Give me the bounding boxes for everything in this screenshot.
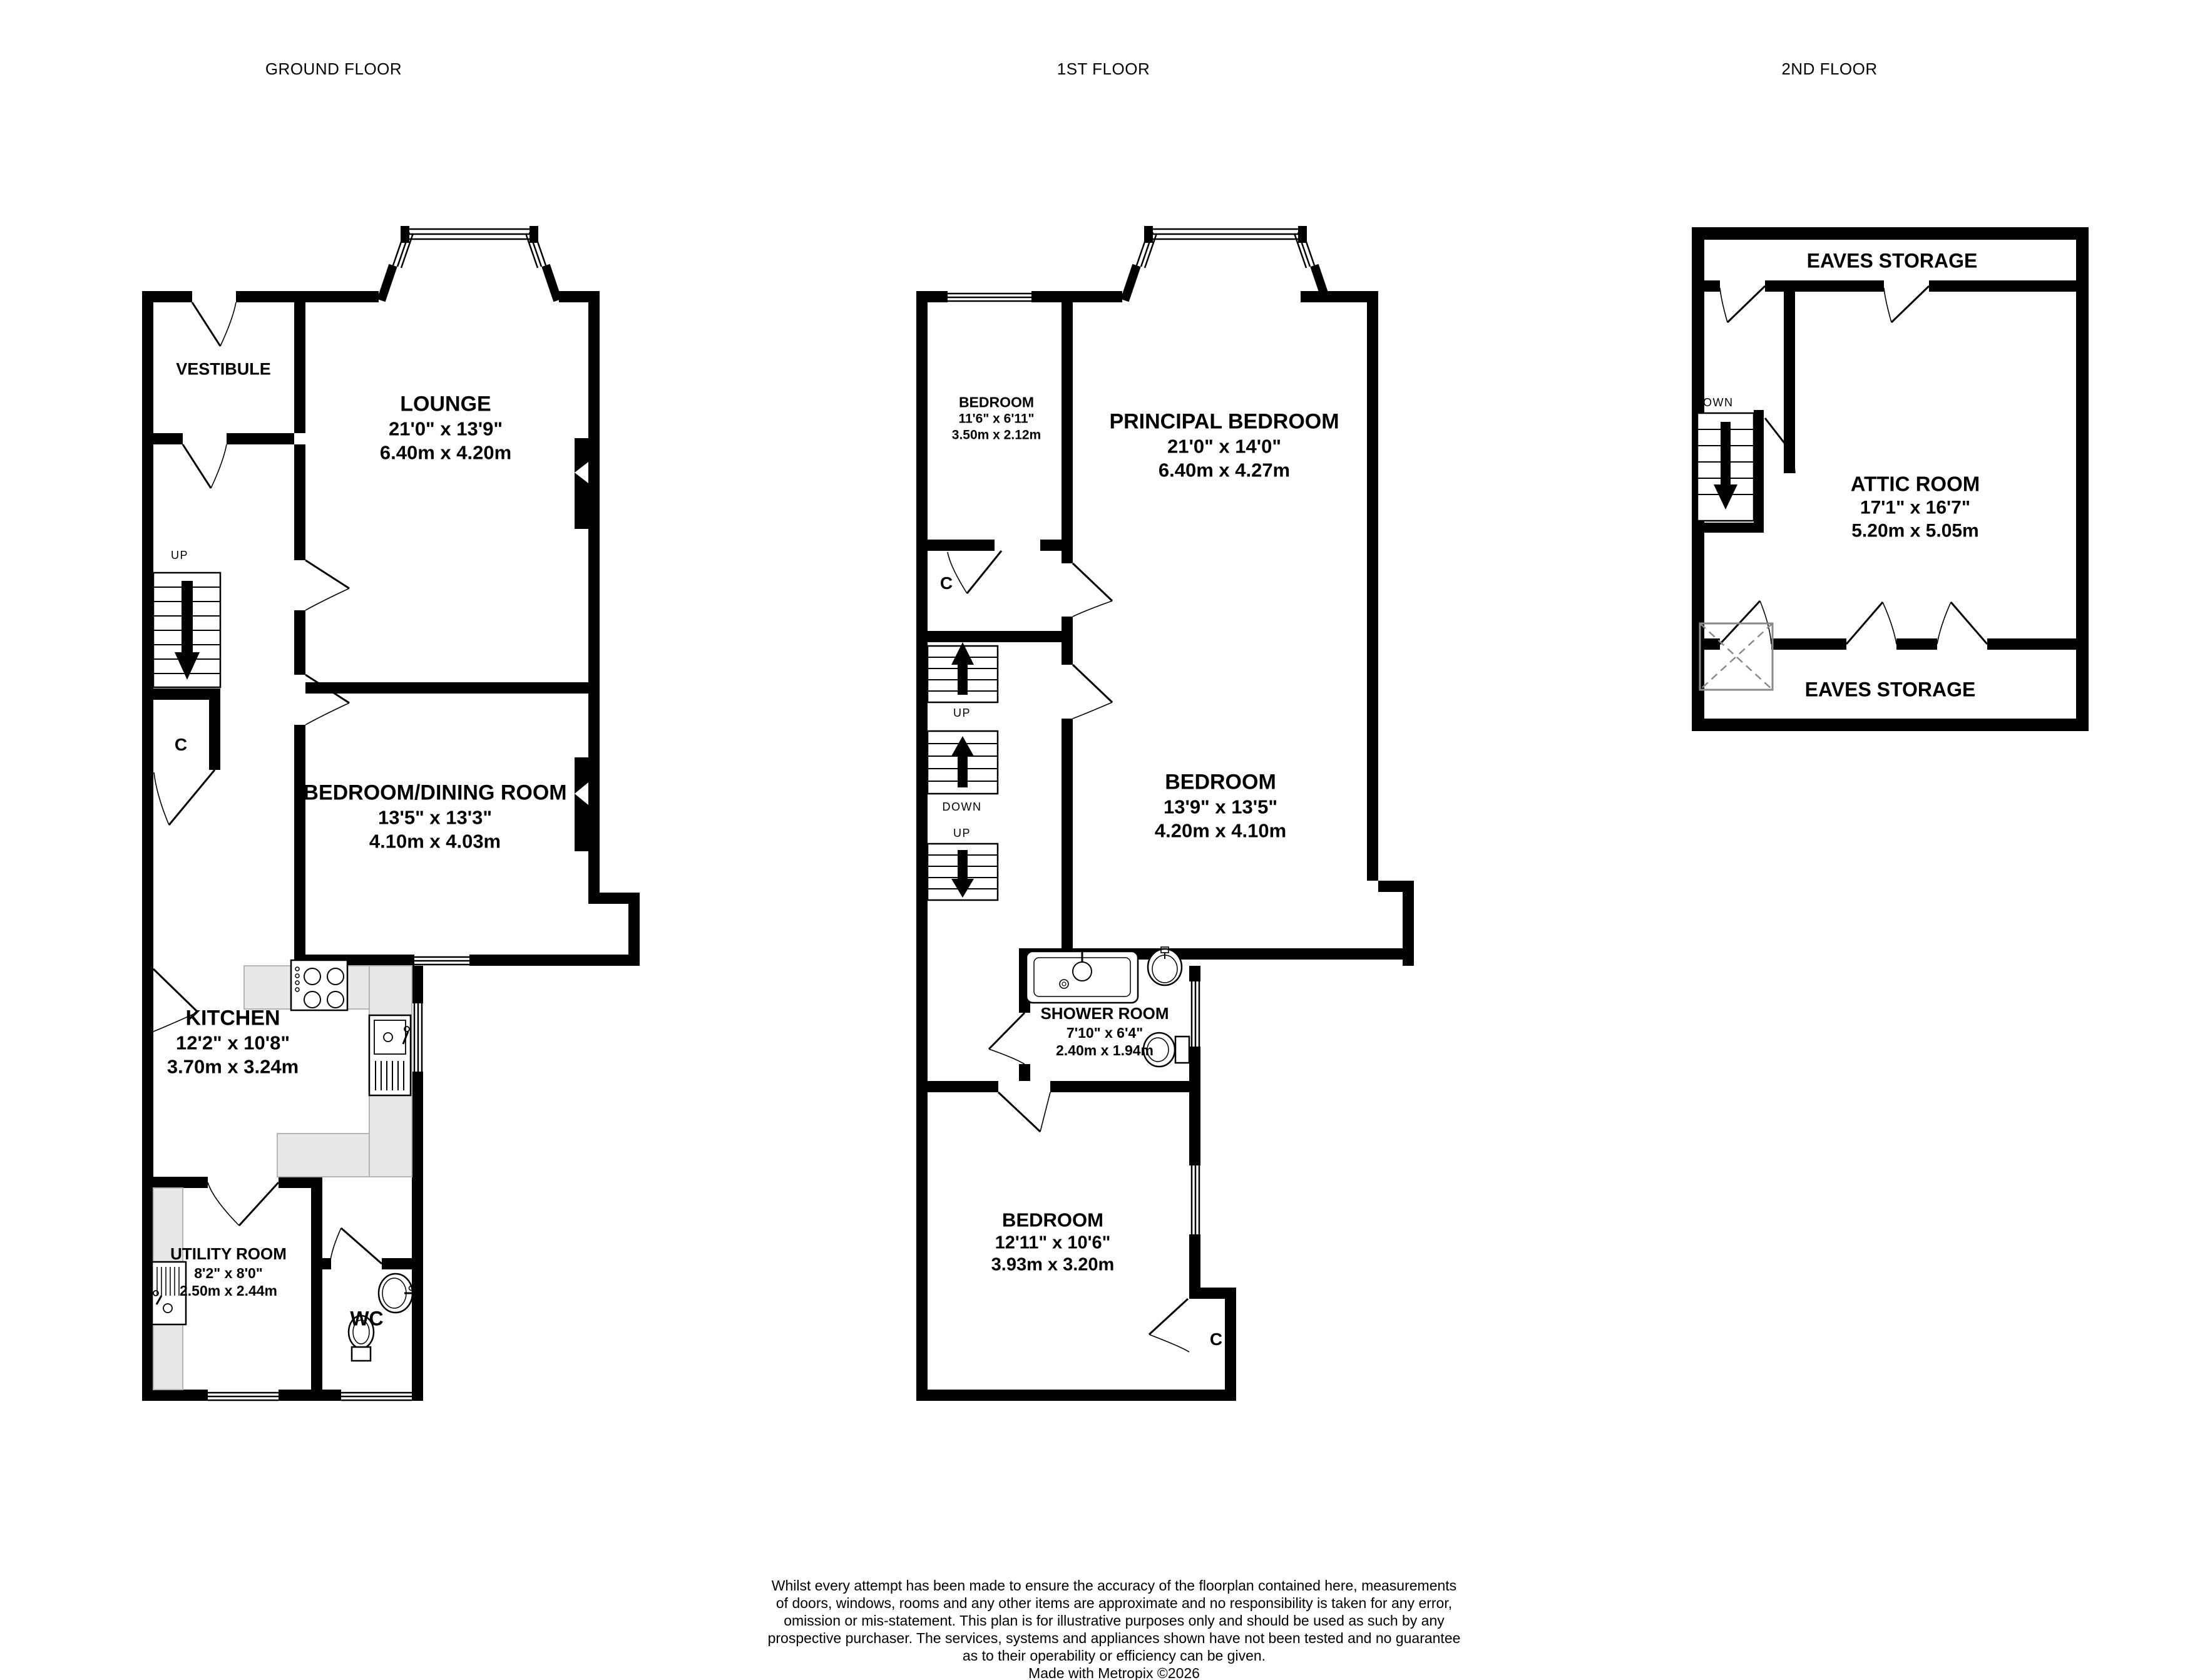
closet-label-first-upper: C: [940, 573, 953, 594]
room-label-vestibule: VESTIBULE: [176, 359, 271, 380]
closet-label-ground: C: [175, 734, 187, 755]
second-stairs: [1697, 413, 1754, 521]
room-dims-imperial: 8'2" x 8'0": [170, 1264, 287, 1282]
disclaimer-line: as to their operability or efficiency ca…: [768, 1647, 1461, 1664]
kitchen-sink-icon: [369, 1015, 411, 1095]
disclaimer-line: prospective purchaser. The services, sys…: [768, 1629, 1461, 1647]
room-dims-metric: 4.10m x 4.03m: [303, 830, 566, 854]
room-name: KITCHEN: [167, 1005, 299, 1031]
room-dims-metric: 6.40m x 4.27m: [1109, 459, 1339, 483]
room-name: SHOWER ROOM: [1040, 1004, 1169, 1024]
room-dims-metric: 3.50m x 2.12m: [952, 427, 1041, 443]
room-dims-metric: 2.40m x 1.94m: [1040, 1042, 1169, 1059]
room-label-bedroom-dining: BEDROOM/DINING ROOM 13'5" x 13'3" 4.10m …: [303, 780, 566, 853]
room-label-bedroom-small: BEDROOM 11'6" x 6'11" 3.50m x 2.12m: [952, 393, 1041, 443]
room-name: LOUNGE: [380, 391, 511, 417]
room-dims-imperial: 21'0" x 14'0": [1109, 435, 1339, 459]
floor-label-second: 2ND FLOOR: [1781, 59, 1877, 79]
room-name: PRINCIPAL BEDROOM: [1109, 409, 1339, 434]
room-dims-imperial: 13'5" x 13'3": [303, 806, 566, 830]
room-name: BEDROOM: [1155, 769, 1286, 795]
room-name: BEDROOM/DINING ROOM: [303, 780, 566, 806]
room-label-eaves-rear: EAVES STORAGE: [1805, 677, 1976, 702]
room-dims-metric: 6.40m x 4.20m: [380, 441, 511, 465]
room-dims-imperial: 17'1" x 16'7": [1851, 497, 1980, 520]
room-dims-metric: 5.20m x 5.05m: [1851, 520, 1980, 543]
room-label-eaves-front: EAVES STORAGE: [1807, 248, 1978, 273]
room-label-principal-bedroom: PRINCIPAL BEDROOM 21'0" x 14'0" 6.40m x …: [1109, 409, 1339, 482]
disclaimer-line: Whilst every attempt has been made to en…: [768, 1577, 1461, 1594]
room-name: BEDROOM: [952, 393, 1041, 411]
stairs-label-first-up-upper: UP: [953, 707, 971, 720]
room-dims-metric: 3.93m x 3.20m: [991, 1254, 1115, 1276]
room-name: BEDROOM: [991, 1209, 1115, 1232]
disclaimer: Whilst every attempt has been made to en…: [768, 1577, 1461, 1680]
wc-basin-icon: [379, 1274, 414, 1313]
room-label-attic: ATTIC ROOM 17'1" x 16'7" 5.20m x 5.05m: [1851, 471, 1980, 542]
disclaimer-line: of doors, windows, rooms and any other i…: [768, 1594, 1461, 1612]
closet-label-first-lower: C: [1210, 1329, 1222, 1350]
room-label-lounge: LOUNGE 21'0" x 13'9" 6.40m x 4.20m: [380, 391, 511, 464]
first-stairs: [928, 642, 998, 900]
room-label-bedroom-rear: BEDROOM 12'11" x 10'6" 3.93m x 3.20m: [991, 1209, 1115, 1277]
room-dims-imperial: 12'11" x 10'6": [991, 1232, 1115, 1254]
ground-stairs: [153, 573, 220, 687]
room-label-wc: WC: [350, 1306, 383, 1331]
room-name: UTILITY ROOM: [170, 1244, 287, 1264]
room-dims-imperial: 11'6" x 6'11": [952, 411, 1041, 427]
room-label-bedroom-middle: BEDROOM 13'9" x 13'5" 4.20m x 4.10m: [1155, 769, 1286, 843]
ground-bay-window: [381, 226, 558, 300]
room-label-kitchen: KITCHEN 12'2" x 10'8" 3.70m x 3.24m: [167, 1005, 299, 1078]
room-dims-metric: 2.50m x 2.44m: [170, 1282, 287, 1299]
disclaimer-line: omission or mis-statement. This plan is …: [768, 1612, 1461, 1629]
room-dims-metric: 4.20m x 4.10m: [1155, 819, 1286, 843]
room-name: ATTIC ROOM: [1851, 471, 1980, 496]
shower-tray-icon: [1026, 951, 1138, 1003]
stairs-label-ground-up: UP: [171, 549, 188, 563]
room-dims-imperial: 12'2" x 10'8": [167, 1032, 299, 1055]
stairs-label-first-up-lower: UP: [953, 827, 971, 841]
stairs-label-first-down: DOWN: [943, 801, 982, 814]
room-dims-imperial: 7'10" x 6'4": [1040, 1024, 1169, 1042]
room-dims-metric: 3.70m x 3.24m: [167, 1055, 299, 1079]
room-label-utility: UTILITY ROOM 8'2" x 8'0" 2.50m x 2.44m: [170, 1244, 287, 1299]
credit-line: Made with Metropix ©2026: [768, 1664, 1461, 1680]
hob-icon: [291, 960, 347, 1010]
floorplan-canvas: GROUND FLOOR 1ST FLOOR 2ND FLOOR VESTIBU…: [0, 0, 2195, 1680]
room-dims-imperial: 21'0" x 13'9": [380, 417, 511, 441]
room-name: VESTIBULE: [176, 359, 271, 380]
room-label-shower-room: SHOWER ROOM 7'10" x 6'4" 2.40m x 1.94m: [1040, 1004, 1169, 1059]
restricted-height-hatch-box: [1700, 623, 1773, 690]
first-bay-window: [1125, 226, 1326, 300]
stairs-label-second-down: DOWN: [1694, 396, 1734, 410]
floor-label-first: 1ST FLOOR: [1057, 59, 1150, 79]
floor-label-ground: GROUND FLOOR: [265, 59, 402, 79]
room-dims-imperial: 13'9" x 13'5": [1155, 796, 1286, 819]
